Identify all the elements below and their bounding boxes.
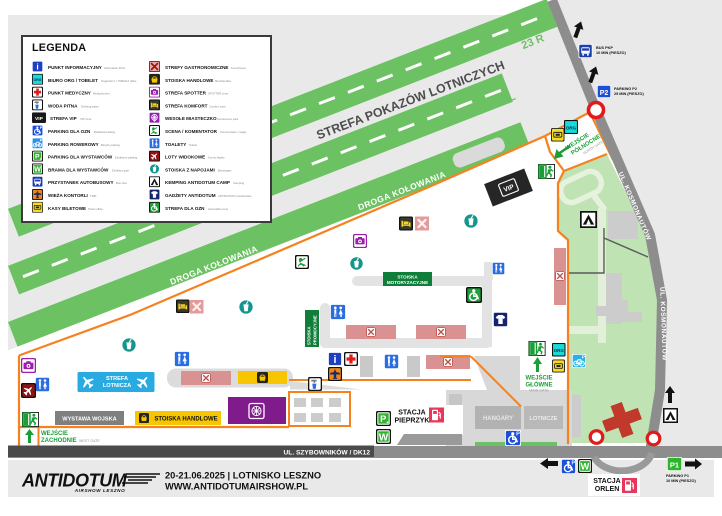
svg-text:Beverages: Beverages <box>218 168 232 172</box>
svg-text:STOISKA: STOISKA <box>397 275 418 280</box>
svg-text:PARKING P2: PARKING P2 <box>614 87 637 91</box>
svg-text:UL. SZYBOWNIKÓW / DK12: UL. SZYBOWNIKÓW / DK12 <box>284 448 371 457</box>
svg-text:LEGENDA: LEGENDA <box>32 42 86 54</box>
svg-text:SPOTTER zone: SPOTTER zone <box>208 92 228 96</box>
svg-text:PIEPRZYK: PIEPRZYK <box>394 418 429 425</box>
svg-text:PROMOCYJNE: PROMOCYJNE <box>313 315 318 345</box>
svg-text:ANTIDOTUM merchandise: ANTIDOTUM merchandise <box>218 194 252 198</box>
svg-text:STOISKA HANDLOWE: STOISKA HANDLOWE <box>165 78 214 83</box>
svg-text:Ticket office: Ticket office <box>88 207 103 211</box>
svg-text:BUS PKP: BUS PKP <box>596 46 613 50</box>
svg-text:Exhibitor gate: Exhibitor gate <box>112 168 130 172</box>
svg-text:GADŻETY ANTIDOTUM: GADŻETY ANTIDOTUM <box>165 192 216 198</box>
svg-text:WEST GATE: WEST GATE <box>79 439 100 443</box>
svg-text:BIURO ORG / TOBILET: BIURO ORG / TOBILET <box>48 78 98 83</box>
svg-text:WEJŚCIE: WEJŚCIE <box>525 375 552 382</box>
svg-text:SCENA / KOMENTATOR: SCENA / KOMENTATOR <box>165 129 218 134</box>
svg-text:P1: P1 <box>670 461 679 470</box>
svg-text:PUNKT INFORMACYJNY: PUNKT INFORMACYJNY <box>48 65 102 70</box>
svg-text:AIRSHOW LESZNO: AIRSHOW LESZNO <box>74 488 126 493</box>
svg-text:MOTORYZACYJNE: MOTORYZACYJNE <box>387 280 428 285</box>
svg-text:Medical point: Medical point <box>93 92 110 96</box>
svg-text:Information Point: Information Point <box>104 66 125 70</box>
svg-text:BRAMA DLA WYSTAWCÓW: BRAMA DLA WYSTAWCÓW <box>48 165 109 172</box>
svg-text:HANGARY: HANGARY <box>483 416 513 422</box>
svg-text:PARKING ROWEROWY: PARKING ROWEROWY <box>48 142 99 147</box>
svg-text:VIP zone: VIP zone <box>80 117 92 121</box>
svg-text:Bicycle parking: Bicycle parking <box>101 143 120 147</box>
svg-text:PUNKT MEDYCZNY: PUNKT MEDYCZNY <box>48 91 91 96</box>
svg-text:Bus stop: Bus stop <box>116 181 127 185</box>
svg-text:ZACHODNIE: ZACHODNIE <box>41 438 77 444</box>
svg-text:STACJA: STACJA <box>593 478 620 485</box>
svg-text:Amusement park: Amusement park <box>217 117 239 121</box>
svg-text:STREFA SPOTTER: STREFA SPOTTER <box>165 91 207 96</box>
svg-text:STREFA KOMFORT: STREFA KOMFORT <box>165 103 208 108</box>
svg-text:Toilets: Toilets <box>189 143 198 147</box>
svg-text:STREFA DLA OZN: STREFA DLA OZN <box>165 206 205 211</box>
svg-text:Comfort zone: Comfort zone <box>209 104 226 108</box>
svg-text:Camping: Camping <box>233 181 245 185</box>
svg-text:Disabled parking: Disabled parking <box>94 130 115 134</box>
svg-text:STOISKA HANDLOWE: STOISKA HANDLOWE <box>154 417 217 423</box>
svg-text:WESOŁE MIASTECZKO: WESOŁE MIASTECZKO <box>165 116 217 121</box>
svg-text:WEJŚCIE: WEJŚCIE <box>41 430 68 437</box>
svg-text:Commentator / stage: Commentator / stage <box>220 130 247 134</box>
svg-text:10 MIN (PIESZO): 10 MIN (PIESZO) <box>666 479 696 483</box>
svg-text:Scenic flights: Scenic flights <box>208 156 225 160</box>
svg-text:STOISKA: STOISKA <box>307 326 312 345</box>
svg-text:Food Zones: Food Zones <box>231 66 247 70</box>
svg-text:MAIN GATE: MAIN GATE <box>529 389 549 393</box>
svg-text:WYSTAWA WOJSKA: WYSTAWA WOJSKA <box>62 417 116 423</box>
svg-text:STREFY GASTRONOMICZNE: STREFY GASTRONOMICZNE <box>165 65 228 70</box>
svg-text:STREFA: STREFA <box>106 376 128 382</box>
svg-text:PARKING P1: PARKING P1 <box>666 474 689 478</box>
svg-text:WIEŻA KONTORLI: WIEŻA KONTORLI <box>48 192 88 198</box>
svg-text:Drinking water: Drinking water <box>81 104 99 108</box>
svg-text:STOISKA Z NAPOJAMI: STOISKA Z NAPOJAMI <box>165 167 215 172</box>
svg-text:25 MIN (PIESZO): 25 MIN (PIESZO) <box>614 92 644 96</box>
svg-text:LOTNICZE: LOTNICZE <box>530 416 558 422</box>
svg-text:WODA PITNA: WODA PITNA <box>48 103 78 108</box>
svg-text:GŁÓWNE: GŁÓWNE <box>526 381 553 389</box>
svg-text:ORLEN: ORLEN <box>595 486 620 493</box>
svg-text:P2: P2 <box>600 90 609 97</box>
svg-text:Accessible zone: Accessible zone <box>208 207 229 211</box>
svg-text:10 MIN (PIESZO): 10 MIN (PIESZO) <box>596 51 626 55</box>
svg-text:Organizer's / TOBILET office: Organizer's / TOBILET office <box>101 79 137 83</box>
svg-text:PARKING DLA WYSTAWCÓW: PARKING DLA WYSTAWCÓW <box>48 153 113 160</box>
svg-text:PARKING DLA OZN: PARKING DLA OZN <box>48 129 91 134</box>
svg-text:Merchandise: Merchandise <box>215 79 231 83</box>
svg-text:TOALETY: TOALETY <box>165 142 186 147</box>
svg-text:LOTY WIDOKOWE: LOTY WIDOKOWE <box>165 155 205 160</box>
svg-text:Exhibitors parking: Exhibitors parking <box>115 156 138 160</box>
svg-text:WWW.ANTIDOTUMAIRSHOW.PL: WWW.ANTIDOTUMAIRSHOW.PL <box>165 482 308 492</box>
svg-text:KEMPING ANTIDOTUM CAMP: KEMPING ANTIDOTUM CAMP <box>165 180 230 185</box>
svg-text:LOTNICZA: LOTNICZA <box>103 383 131 389</box>
svg-text:20-21.06.2025 | LOTNISKO LESZN: 20-21.06.2025 | LOTNISKO LESZNO <box>165 471 321 481</box>
svg-text:TWR: TWR <box>90 194 96 198</box>
svg-text:PRZYSTANEK AUTOBUSOWY: PRZYSTANEK AUTOBUSOWY <box>48 180 114 185</box>
svg-text:STACJA: STACJA <box>398 410 425 417</box>
svg-text:KASY BILETOWE: KASY BILETOWE <box>48 206 86 211</box>
svg-text:STREFA VIP: STREFA VIP <box>50 116 77 121</box>
